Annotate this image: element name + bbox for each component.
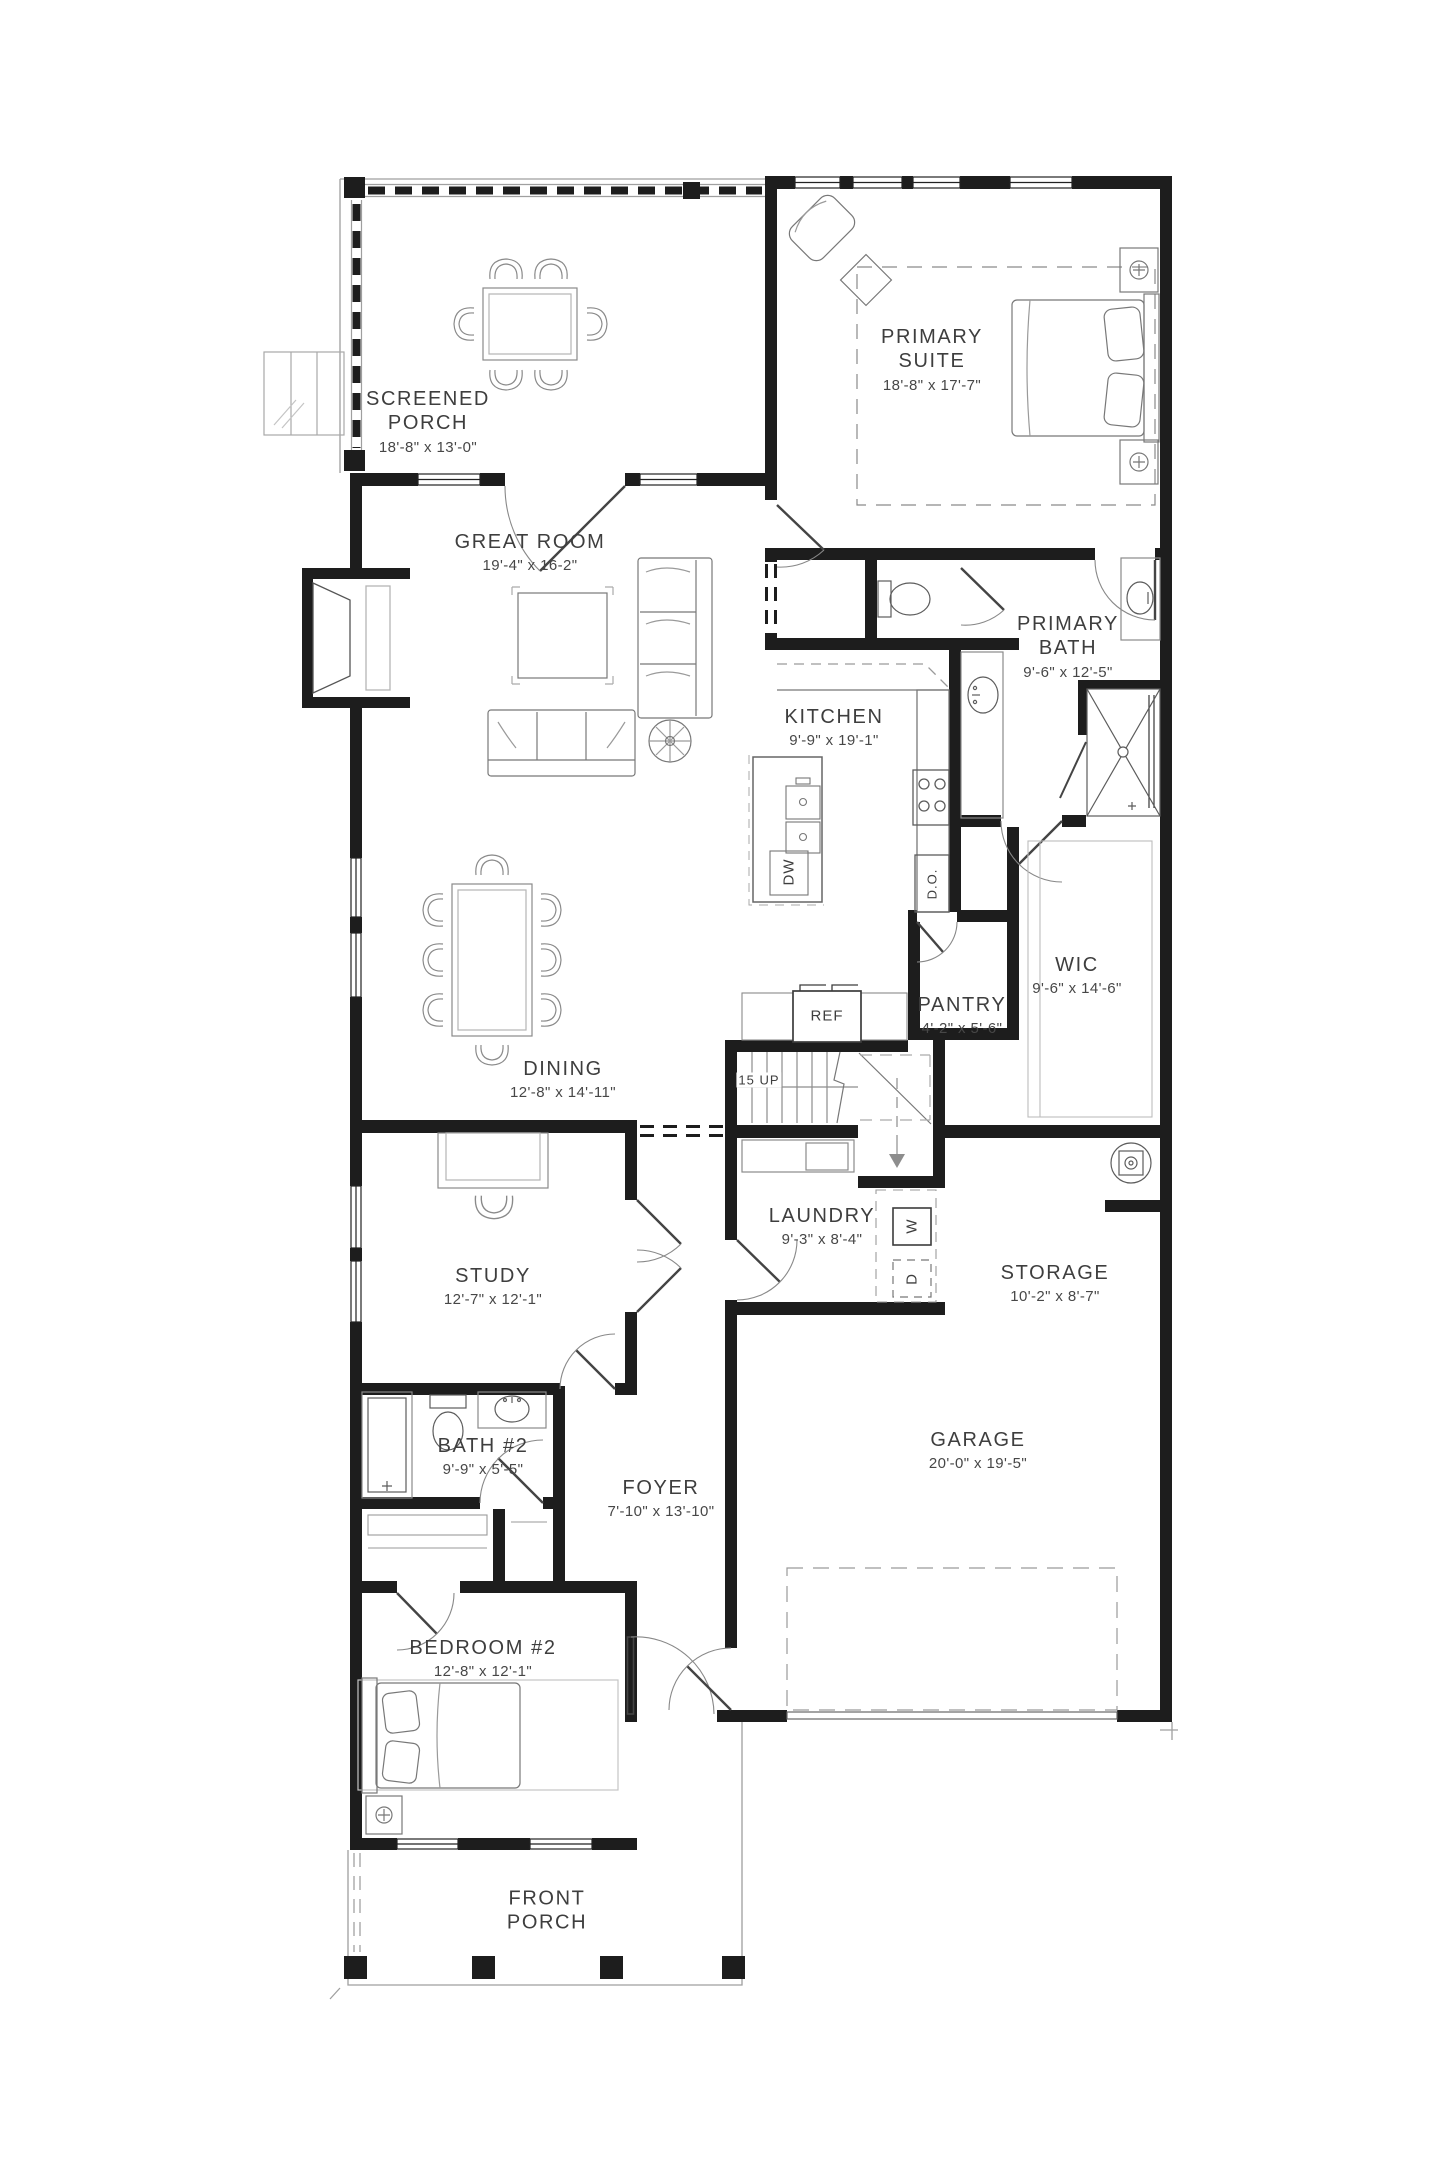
double-oven-label: D.O. (925, 867, 940, 902)
toilet (878, 581, 930, 617)
study-french-doors (637, 1200, 681, 1312)
front-door (628, 1637, 715, 1714)
ottoman (841, 255, 892, 306)
study-door (560, 1334, 615, 1389)
bed (1012, 294, 1159, 442)
island-sink (786, 778, 820, 853)
shower-door (1060, 695, 1154, 808)
porch-steps (264, 352, 344, 435)
room-label-screened-porch: SCREENEDPORCH18'-8" x 13'-0" (366, 387, 490, 457)
room-label-wic: WIC9'-6" x 14'-6" (1032, 953, 1122, 999)
room-label-laundry: LAUNDRY9'-3" x 8'-4" (769, 1204, 875, 1250)
dining-table-set (423, 855, 561, 1065)
washer-label: W (904, 1216, 921, 1235)
room-label-garage: GARAGE20'-0" x 19'-5" (929, 1428, 1027, 1474)
stairs-label: 15 UP (736, 1073, 781, 1088)
window (351, 1186, 361, 1248)
corner-chair (785, 191, 859, 265)
window (853, 177, 902, 188)
water-closet-door (961, 568, 1004, 625)
room-label-front-porch: FRONTPORCH (507, 1887, 587, 1936)
floor-plan-drawing (0, 0, 1440, 2160)
coffee-table (512, 587, 613, 684)
stairs-direction-arrow (889, 1078, 905, 1168)
stairs (737, 1052, 931, 1168)
room-label-bath-2: BATH #29'-9" x 5'-5" (438, 1434, 529, 1480)
room-label-storage: STORAGE10'-2" x 8'-7" (1001, 1261, 1110, 1307)
pantry-door (917, 922, 957, 962)
room-label-study: STUDY12'-7" x 12'-1" (444, 1264, 542, 1310)
window (351, 1261, 361, 1322)
window (913, 177, 960, 188)
room-label-great-room: GREAT ROOM19'-4" x 16-2" (455, 530, 606, 576)
nightstand (366, 1796, 402, 1834)
window (640, 474, 697, 485)
fireplace (313, 583, 390, 693)
study-furniture (438, 1133, 548, 1219)
front-porch-posts (344, 1956, 745, 1979)
bedroom-2-furniture (358, 1678, 618, 1834)
room-label-dining: DINING12'-8" x 14'-11" (510, 1057, 616, 1103)
window (530, 1839, 592, 1849)
sofa-bottom (488, 710, 635, 776)
window (351, 933, 361, 997)
dryer-label: D (904, 1271, 921, 1287)
nightstand (1120, 440, 1158, 484)
nightstand (1120, 248, 1158, 292)
window (351, 858, 361, 917)
window (1010, 177, 1072, 188)
room-label-bedroom-2: BEDROOM #212'-8" x 12'-1" (409, 1636, 556, 1682)
room-label-primary-suite: PRIMARYSUITE18'-8" x 17'-7" (881, 325, 983, 395)
vanity (478, 1392, 546, 1428)
room-label-kitchen: KITCHEN9'-9" x 19'-1" (785, 705, 884, 751)
front-porch-screen (354, 1853, 360, 1952)
bed (362, 1678, 520, 1793)
room-label-primary-bath: PRIMARYBATH9'-6" x 12'-5" (1017, 612, 1119, 682)
window (397, 1839, 458, 1849)
room-label-foyer: FOYER7'-10" x 13'-10" (608, 1476, 715, 1522)
room-label-pantry: PANTRY4'-2" x 5'-6" (918, 993, 1007, 1039)
dishwasher-label: DW (781, 857, 798, 888)
garage-entry-door (669, 1648, 731, 1710)
porch-table-set (454, 259, 607, 390)
window (418, 474, 480, 485)
closets (368, 1515, 547, 1548)
water-heater (1111, 1143, 1151, 1183)
range (913, 770, 949, 825)
floor-plan: SCREENEDPORCH18'-8" x 13'-0" PRIMARYSUIT… (0, 0, 1440, 2160)
side-table (649, 720, 691, 762)
kitchen-counters (777, 664, 949, 912)
window (795, 177, 840, 188)
refrigerator-label: REF (809, 1008, 846, 1025)
sofa-right (638, 558, 712, 718)
tub (362, 1392, 412, 1498)
garage-door (787, 1568, 1117, 1719)
vanity-left (961, 652, 1003, 818)
